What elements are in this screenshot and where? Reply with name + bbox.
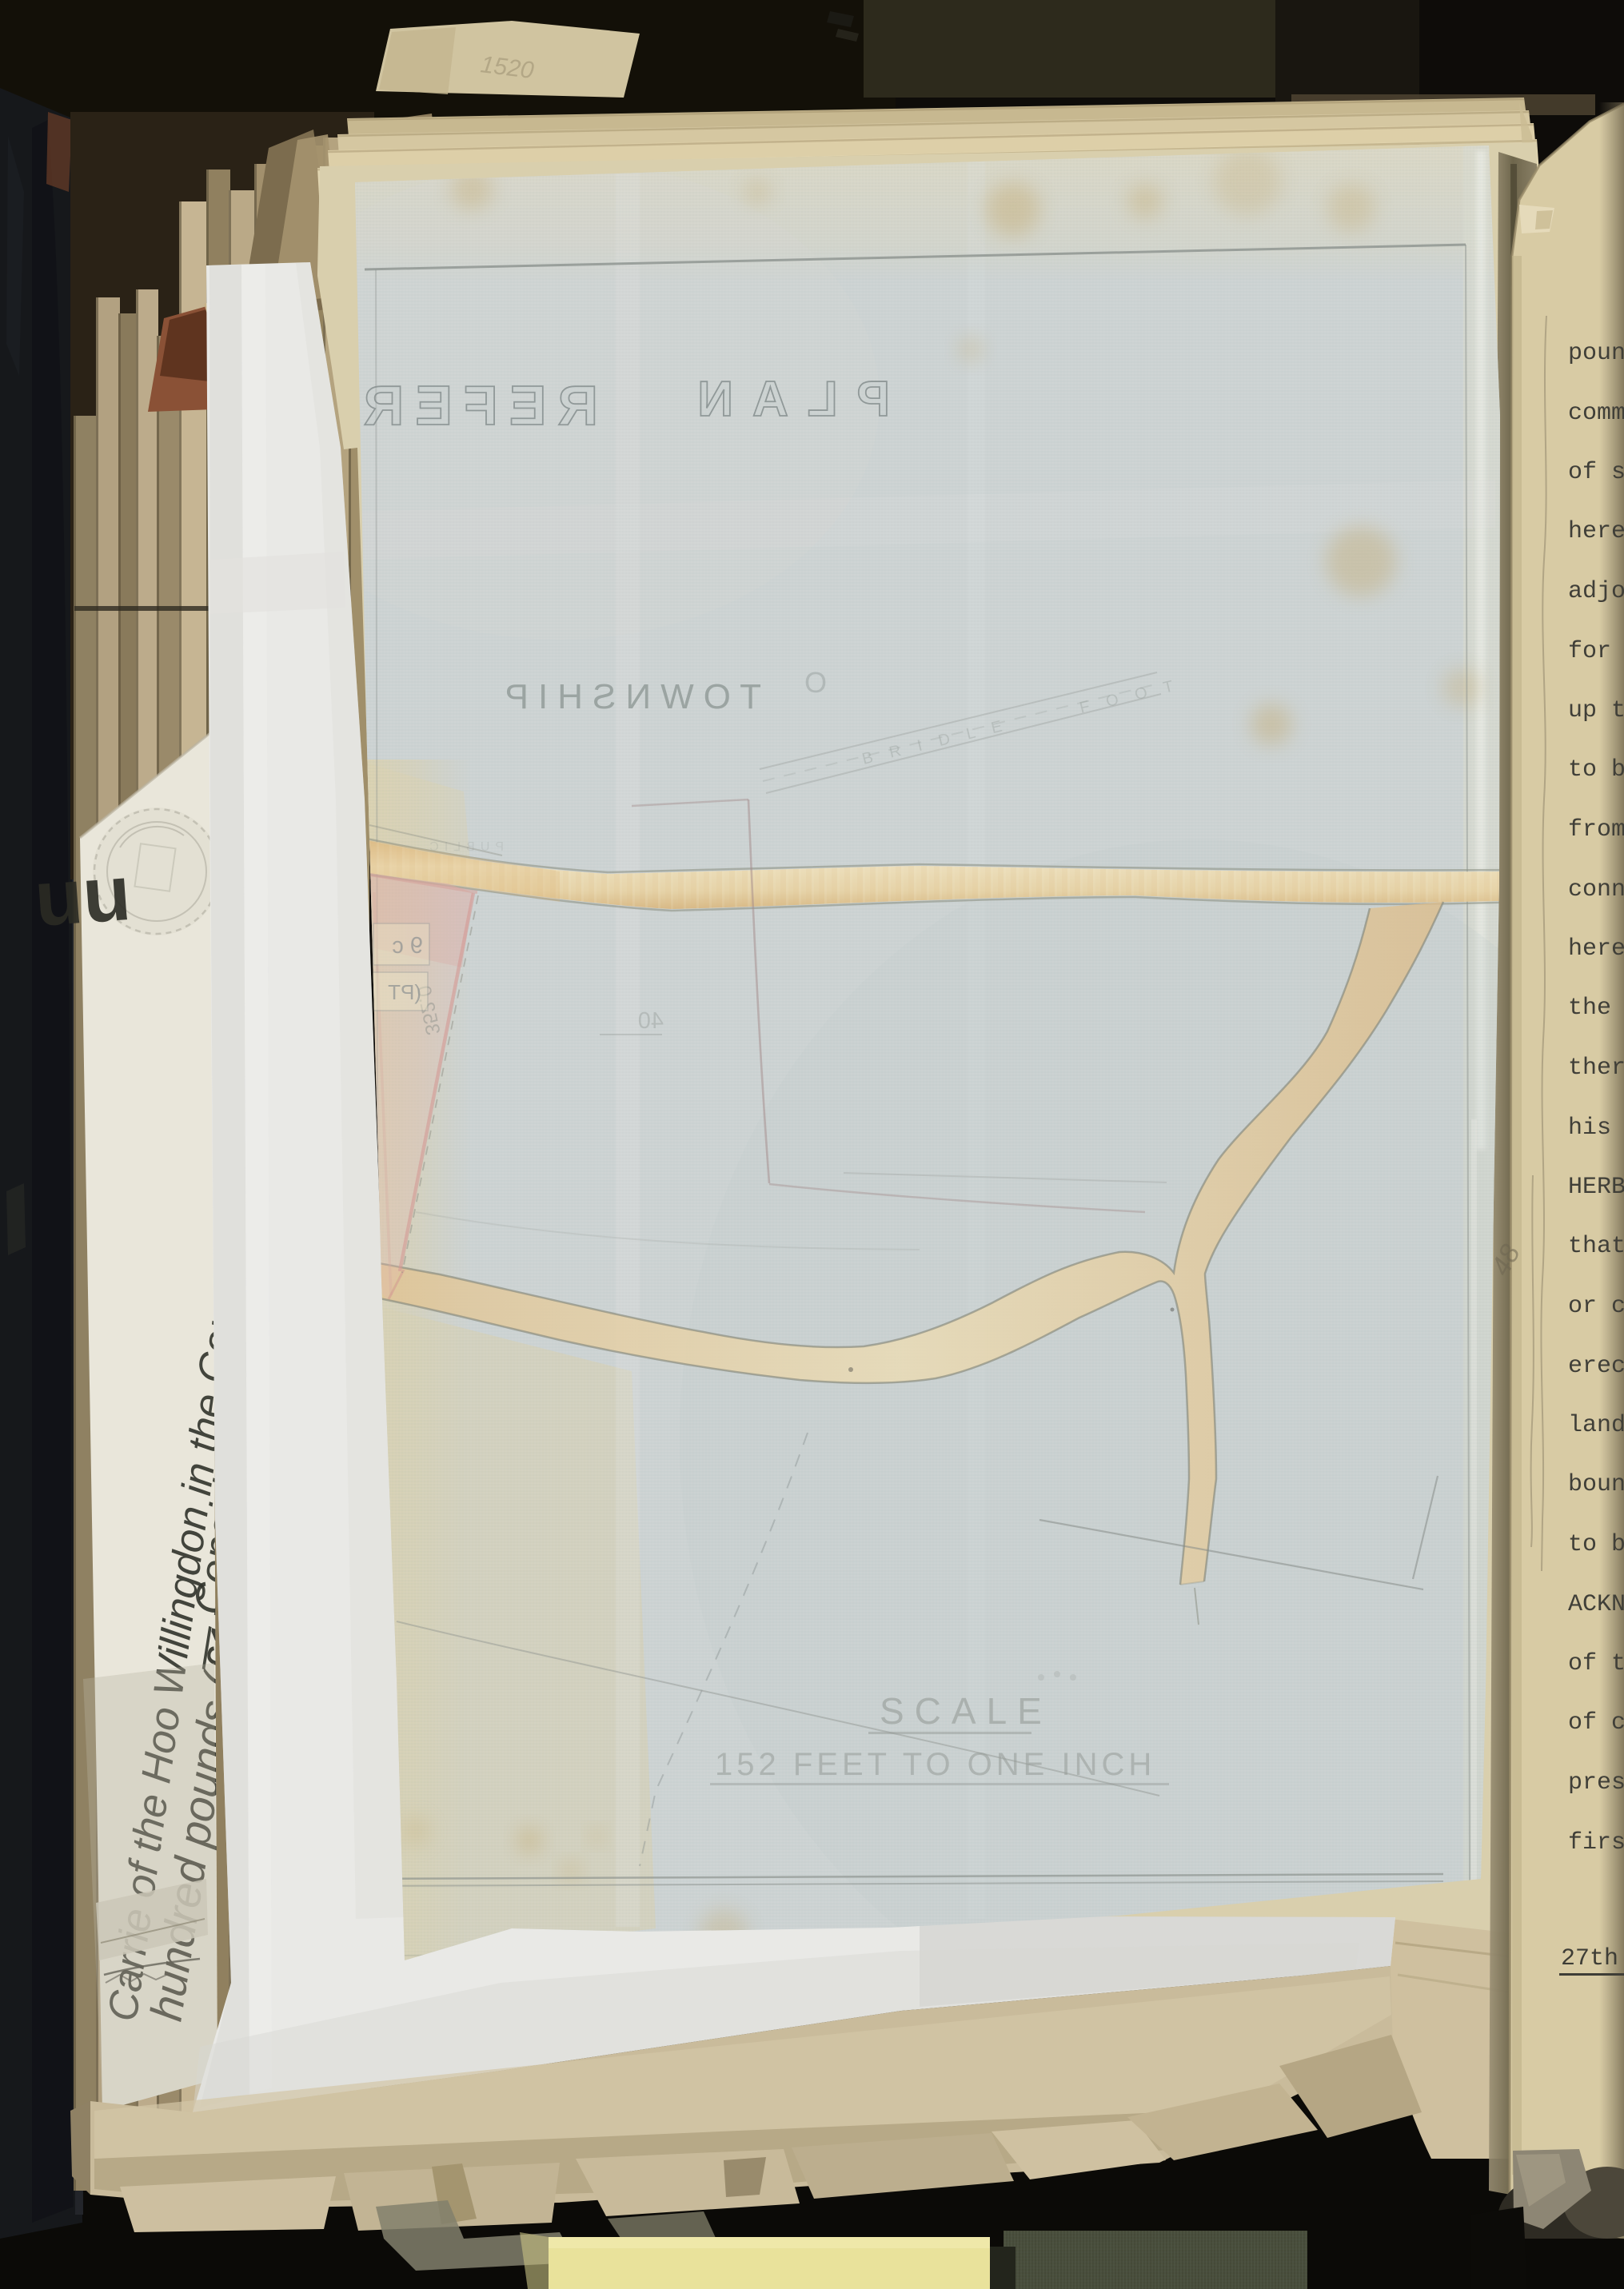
svg-text:there: there (1568, 1055, 1624, 1082)
svg-text:TOWNSHIP: TOWNSHIP (496, 677, 761, 716)
svg-text:SCALE: SCALE (880, 1690, 1052, 1732)
svg-text:land: land (1568, 1412, 1624, 1439)
svg-text:of co: of co (1568, 1709, 1624, 1737)
svg-text:erect: erect (1568, 1353, 1624, 1380)
svg-text:27th: 27th (1561, 1945, 1618, 1972)
svg-text:HERBE: HERBE (1568, 1174, 1624, 1201)
svg-text:to be: to be (1568, 756, 1624, 784)
svg-text:ACKNO: ACKNO (1568, 1591, 1624, 1618)
svg-text:that: that (1568, 1233, 1624, 1260)
svg-text:(PT: (PT (388, 980, 421, 1004)
svg-text:conne: conne (1568, 876, 1624, 903)
svg-text:first: first (1568, 1829, 1624, 1856)
svg-text:pound: pound (1568, 340, 1624, 367)
svg-text:adjoi: adjoi (1568, 578, 1624, 605)
svg-text:of sa: of sa (1568, 459, 1624, 486)
svg-text:PUBLIC: PUBLIC (424, 840, 504, 854)
svg-text:hereb: hereb (1568, 518, 1624, 545)
svg-text:the s: the s (1568, 995, 1624, 1022)
svg-text:PLAN: PLAN (678, 372, 890, 427)
svg-text:commen: commen (1568, 400, 1624, 427)
svg-text:to be: to be (1568, 1531, 1624, 1558)
svg-text:from: from (1568, 816, 1624, 843)
svg-text:152 FEET TO ONE INCH: 152 FEET TO ONE INCH (715, 1747, 1155, 1782)
svg-text:uu: uu (32, 848, 134, 943)
svg-text:up to: up to (1568, 697, 1624, 724)
svg-text:his s: his s (1568, 1115, 1624, 1142)
svg-text:for t: for t (1568, 638, 1624, 665)
svg-text:REFER: REFER (353, 374, 598, 437)
svg-text:of th: of th (1568, 1650, 1624, 1677)
svg-text:or ca: or ca (1568, 1293, 1624, 1320)
svg-text:prese: prese (1568, 1769, 1624, 1797)
svg-text:40: 40 (638, 1008, 664, 1034)
svg-text:O: O (804, 666, 827, 699)
svg-text:9 c: 9 c (392, 933, 423, 959)
svg-text:hereu: hereu (1568, 935, 1624, 963)
svg-text:bound: bound (1568, 1471, 1624, 1498)
